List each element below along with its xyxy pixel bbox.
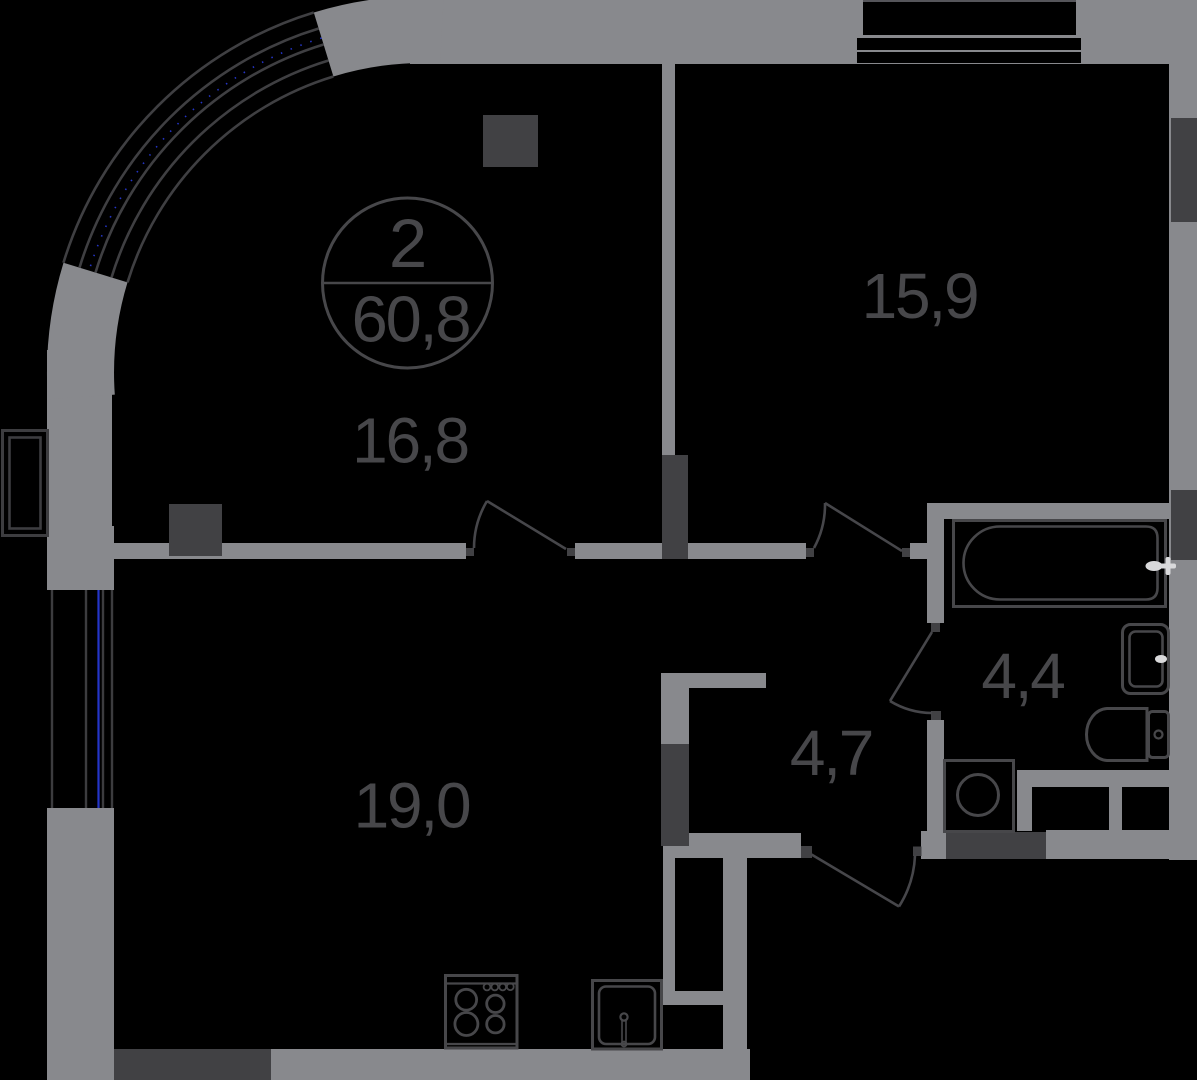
- svg-text:4,7: 4,7: [790, 717, 872, 789]
- svg-text:60,8: 60,8: [352, 282, 470, 355]
- svg-text:19,0: 19,0: [354, 770, 470, 842]
- svg-text:2: 2: [389, 205, 425, 282]
- svg-text:4,4: 4,4: [981, 640, 1064, 712]
- svg-text:16,8: 16,8: [352, 405, 468, 477]
- svg-text:15,9: 15,9: [862, 260, 978, 332]
